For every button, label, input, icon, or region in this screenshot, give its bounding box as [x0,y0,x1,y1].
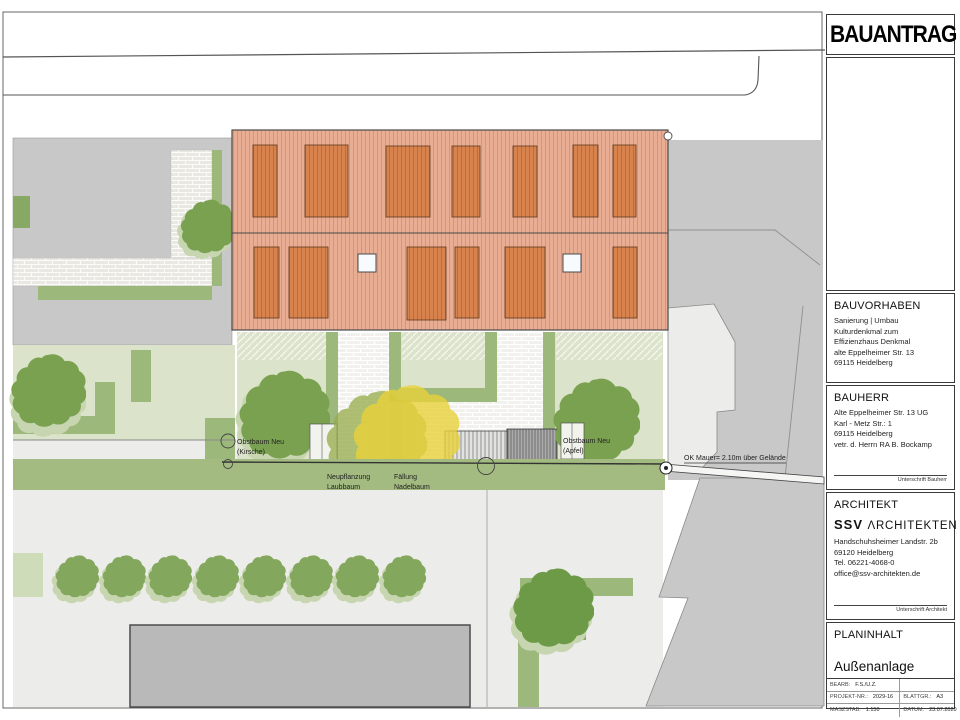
roof-window [452,146,480,217]
massstab-label: MASZSTAB: [830,707,861,713]
garden-path [497,332,543,406]
main-building-roof [232,130,672,330]
doc-type-title: BAUANTRAG [830,21,956,49]
label-faellung: Fällung [394,474,417,481]
signature-rule [834,475,947,476]
architekt-section: ARCHITEKT SSV ΛRCHITEKTEN Handschuhsheim… [826,492,955,620]
architekt-signature-area: Unterschrift Architekt [834,605,947,613]
roof-window [289,247,328,318]
blatt-value: A3 [936,694,943,700]
architekt-line: office@ssv-architekten.de [834,569,947,580]
ssv-architekten-logo: SSV ΛRCHITEKTEN [834,516,947,534]
roof-window [386,146,430,217]
planinhalt-heading: PLANINHALT [827,623,954,641]
roof-window [253,145,277,217]
roof-window [455,247,479,318]
bauherr-signature-area: Unterschrift Bauherr [834,475,947,483]
label-obstbaum-kirsche: Obstbaum Neu [237,439,284,446]
bauherr-line: 69115 Heidelberg [834,429,947,440]
cell-empty [899,679,954,692]
logo-ssv: SSV [834,517,863,532]
neighbour-building-south [130,625,470,707]
cell-massstab: MASZSTAB: 1:150 [827,704,899,717]
stamp-area [826,57,955,291]
projekt-value: 2029-16 [873,694,893,700]
architekt-heading: ARCHITEKT [834,499,947,511]
roof-window [407,247,446,320]
label-faellung-2: Nadelbaum [394,484,430,491]
architekt-line: 69120 Heidelberg [834,548,947,559]
roof-window [573,145,598,217]
logo-architekten: ΛRCHITEKTEN [867,520,957,532]
street-tree-row [13,553,426,603]
label-mauer: OK Mauer= 2.10m über Gelände [684,455,786,462]
bauvorhaben-line: Effizienzhaus Denkmal [834,337,947,348]
bauherr-line: Alte Eppelheimer Str. 13 UG [834,408,947,419]
roof-window [505,247,545,318]
paved-band [13,258,212,286]
datum-label: DATUM: [903,707,924,713]
bauvorhaben-line: Kulturdenkmal zum [834,327,947,338]
label-neupflanzung-2: Laubbaum [327,484,360,491]
bauantrag-sheet: Obstbaum Neu (Kirsche) Neupflanzung Laub… [0,0,960,720]
bauvorhaben-heading: BAUVORHABEN [834,300,947,312]
roof-window [305,145,348,217]
doc-type-box: BAUANTRAG [826,14,955,55]
massstab-value: 1:150 [866,707,880,713]
chimney [358,254,376,272]
chimney [563,254,581,272]
info-table: BEARB: F.S./U.Z. PROJEKT-NR.: 2029-16 BL… [827,678,954,717]
bauherr-line: vetr. d. Herrn RA B. Bockamp [834,440,947,451]
cell-bearb: BEARB: F.S./U.Z. [827,679,899,692]
neighbour-parcel-west [13,138,236,345]
cell-projekt: PROJEKT-NR.: 2029-16 [827,692,899,705]
architekt-line: Tel. 06221-4068-0 [834,558,947,569]
roof-window [254,247,279,318]
site-plan-drawing: Obstbaum Neu (Kirsche) Neupflanzung Laub… [0,0,825,720]
cell-blatt: BLATTGR.: A3 [899,692,954,705]
architekt-line: Handschuhsheimer Landstr. 2b [834,537,947,548]
architekt-signature-label: Unterschrift Architekt [834,607,947,613]
bauherr-section: BAUHERR Alte Eppelheimer Str. 13 UG Karl… [826,385,955,490]
label-obstbaum-apfel: Obstbaum Neu [563,438,610,445]
label-neupflanzung: Neupflanzung [327,474,370,481]
label-obstbaum-apfel-2: (Apfel) [563,448,584,455]
downpipe [664,132,672,140]
signature-rule [834,605,947,606]
roof-window [613,145,636,217]
label-obstbaum-kirsche-2: (Kirsche) [237,449,265,456]
projekt-label: PROJEKT-NR.: [830,694,868,700]
bearb-value: F.S./U.Z. [855,682,876,688]
bauherr-signature-label: Unterschrift Bauherr [834,477,947,483]
title-block: BAUANTRAG BAUVORHABEN Sanierung | Umbau … [825,0,958,720]
cell-datum: DATUM: 23.07.2020 [899,704,954,717]
datum-value: 23.07.2020 [929,707,957,713]
bauherr-line: Karl - Metz Str.: 1 [834,419,947,430]
roof-window [513,146,537,217]
roof-window [613,247,637,318]
blatt-label: BLATTGR.: [903,694,931,700]
bauvorhaben-line: alte Eppelheimer Str. 13 [834,348,947,359]
bauvorhaben-line: 69115 Heidelberg [834,358,947,369]
planinhalt-section: PLANINHALT Außenanlage BEARB: F.S./U.Z. … [826,622,955,709]
bauvorhaben-line: Sanierung | Umbau [834,316,947,327]
bauvorhaben-section: BAUVORHABEN Sanierung | Umbau Kulturdenk… [826,293,955,383]
bearb-label: BEARB: [830,682,850,688]
bauherr-heading: BAUHERR [834,392,947,404]
plan-name: Außenanlage [827,645,954,678]
